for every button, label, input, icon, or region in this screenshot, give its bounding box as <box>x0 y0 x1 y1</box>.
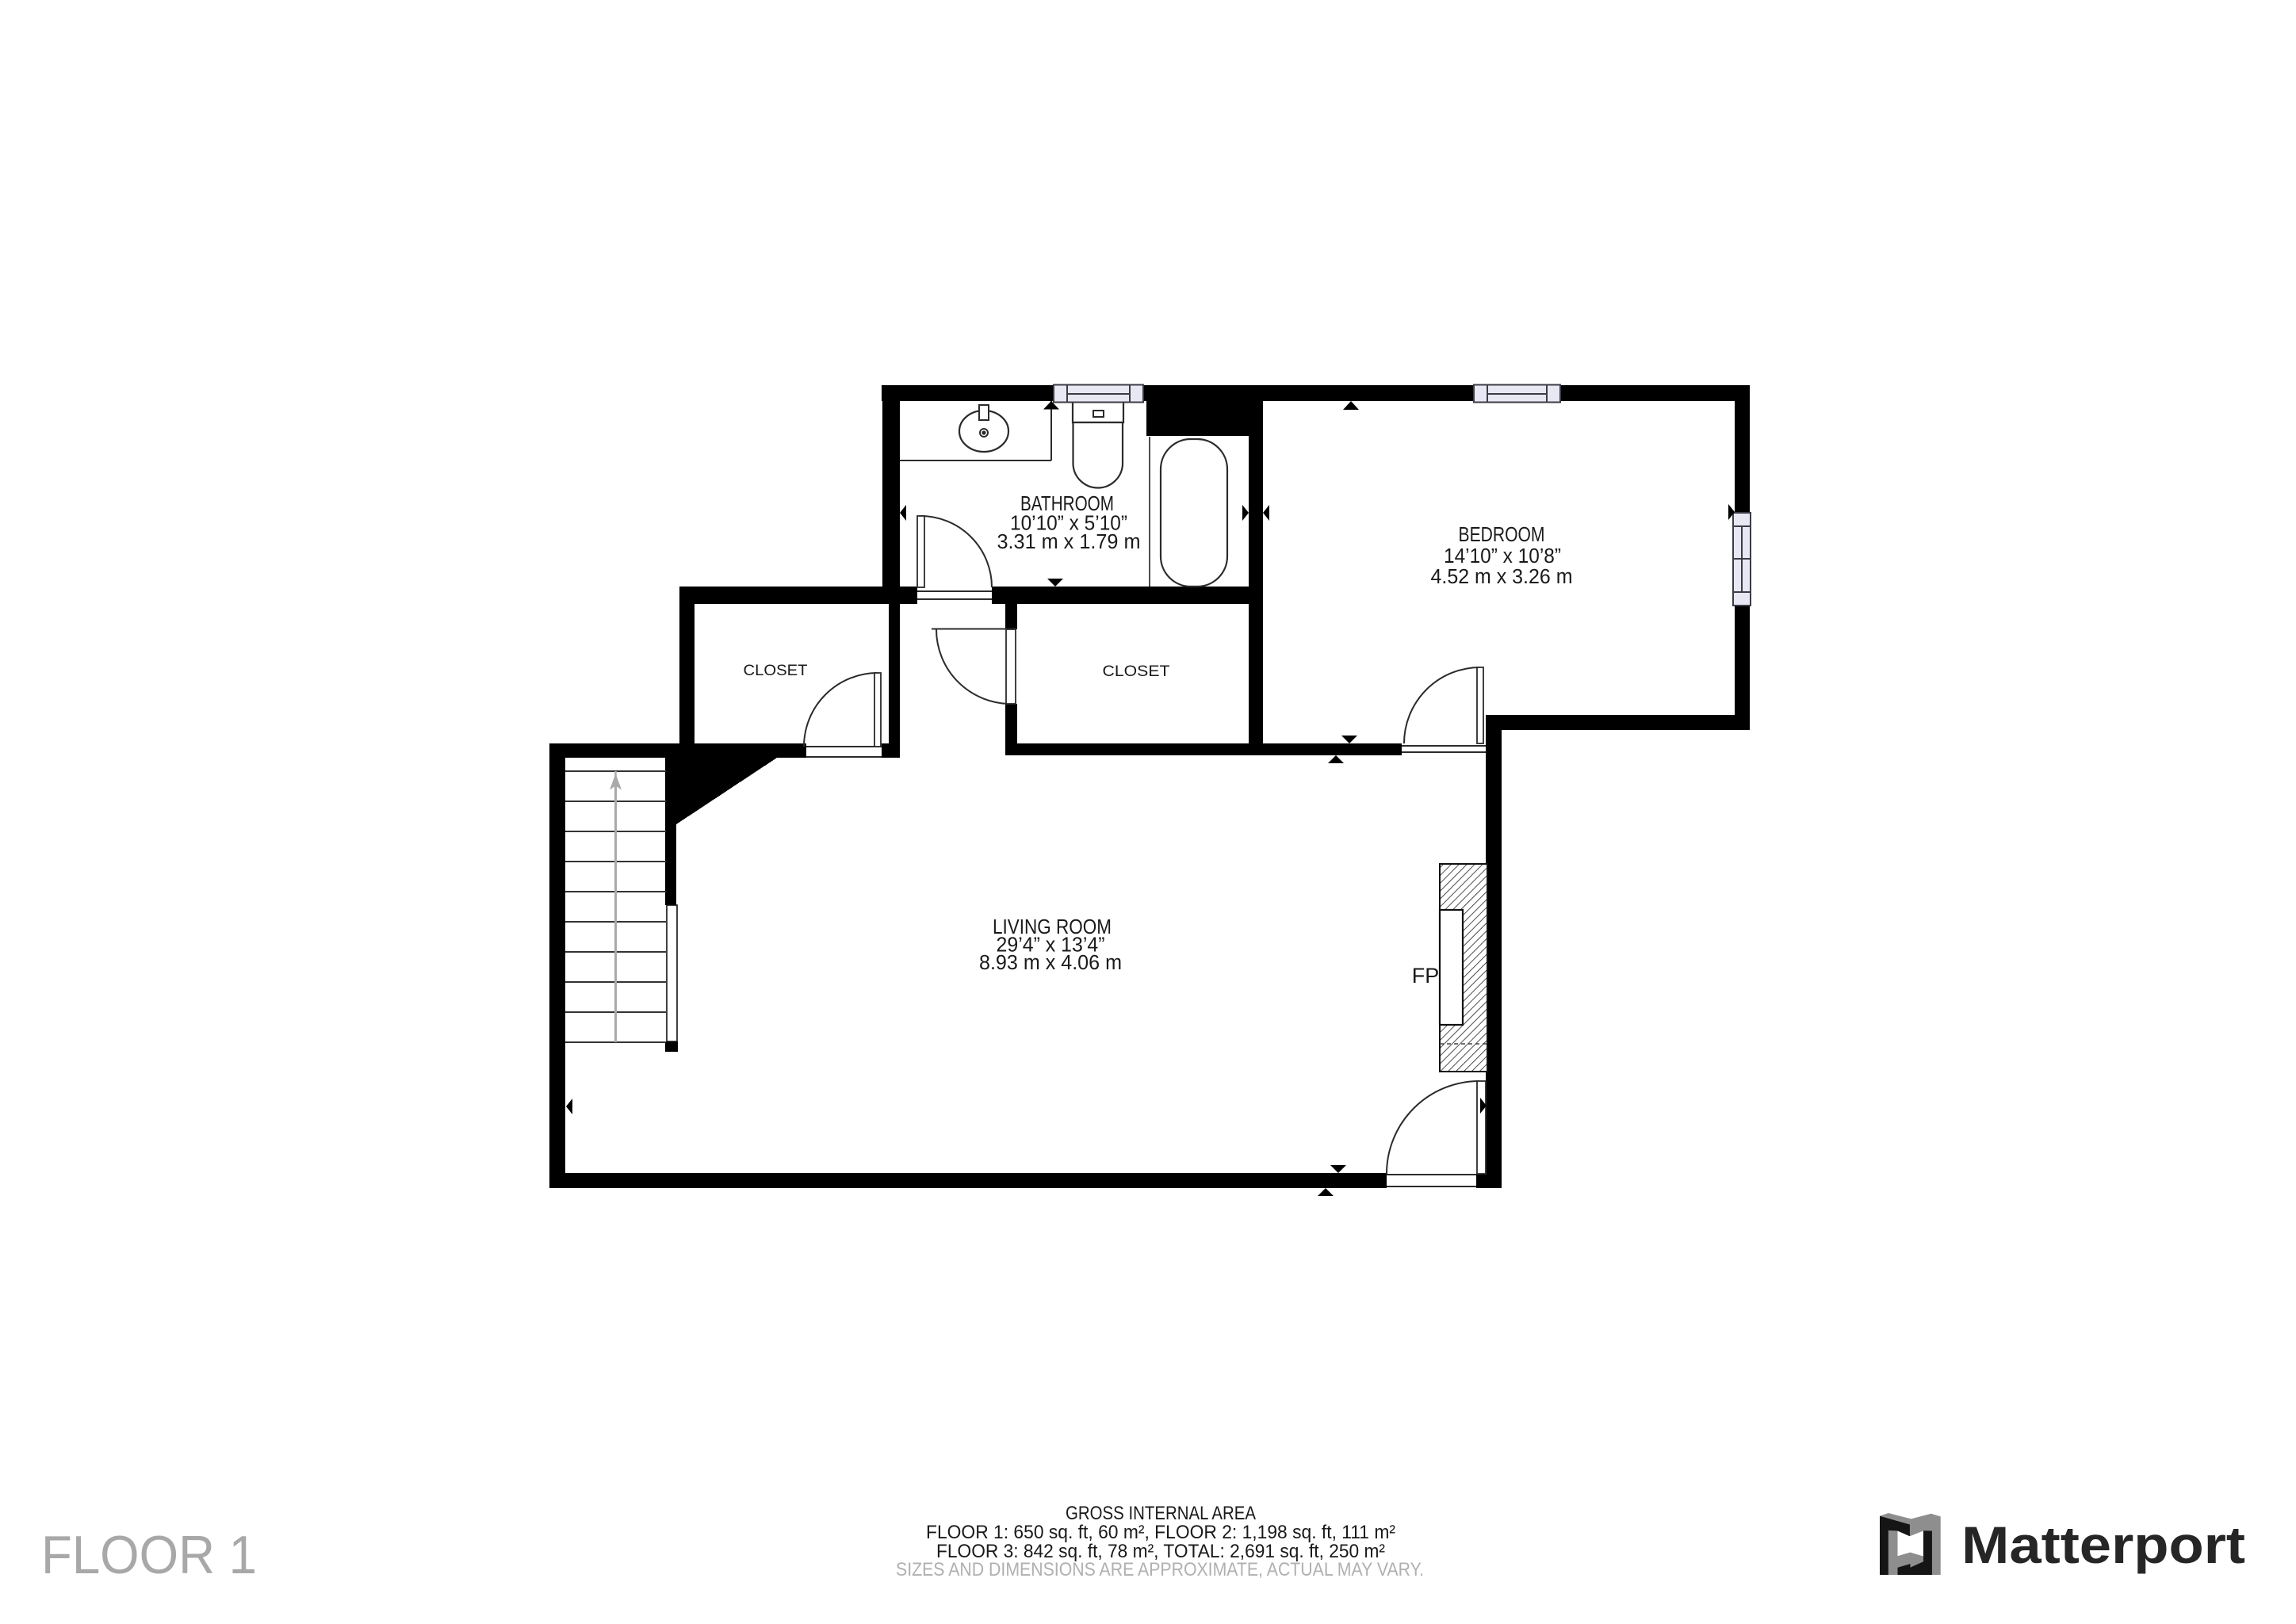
svg-text:BEDROOM: BEDROOM <box>1459 524 1545 546</box>
svg-text:SIZES AND DIMENSIONS ARE APPRO: SIZES AND DIMENSIONS ARE APPROXIMATE, AC… <box>896 1559 1424 1580</box>
svg-text:14’10” x 10’8”: 14’10” x 10’8” <box>1444 545 1561 567</box>
svg-text:FLOOR 1: 650 sq. ft, 60 m², FL: FLOOR 1: 650 sq. ft, 60 m², FLOOR 2: 1,1… <box>926 1522 1395 1543</box>
svg-text:8.93 m x 4.06 m: 8.93 m x 4.06 m <box>979 952 1122 974</box>
svg-text:GROSS INTERNAL AREA: GROSS INTERNAL AREA <box>1066 1503 1256 1524</box>
svg-text:3.31 m x 1.79 m: 3.31 m x 1.79 m <box>997 531 1141 553</box>
svg-text:FP: FP <box>1412 964 1440 988</box>
svg-text:4.52 m x 3.26 m: 4.52 m x 3.26 m <box>1431 566 1573 588</box>
svg-text:FLOOR 1: FLOOR 1 <box>41 1525 257 1585</box>
svg-text:Matterport: Matterport <box>1961 1515 2245 1574</box>
svg-text:CLOSET: CLOSET <box>744 662 808 679</box>
svg-text:CLOSET: CLOSET <box>1103 663 1170 680</box>
